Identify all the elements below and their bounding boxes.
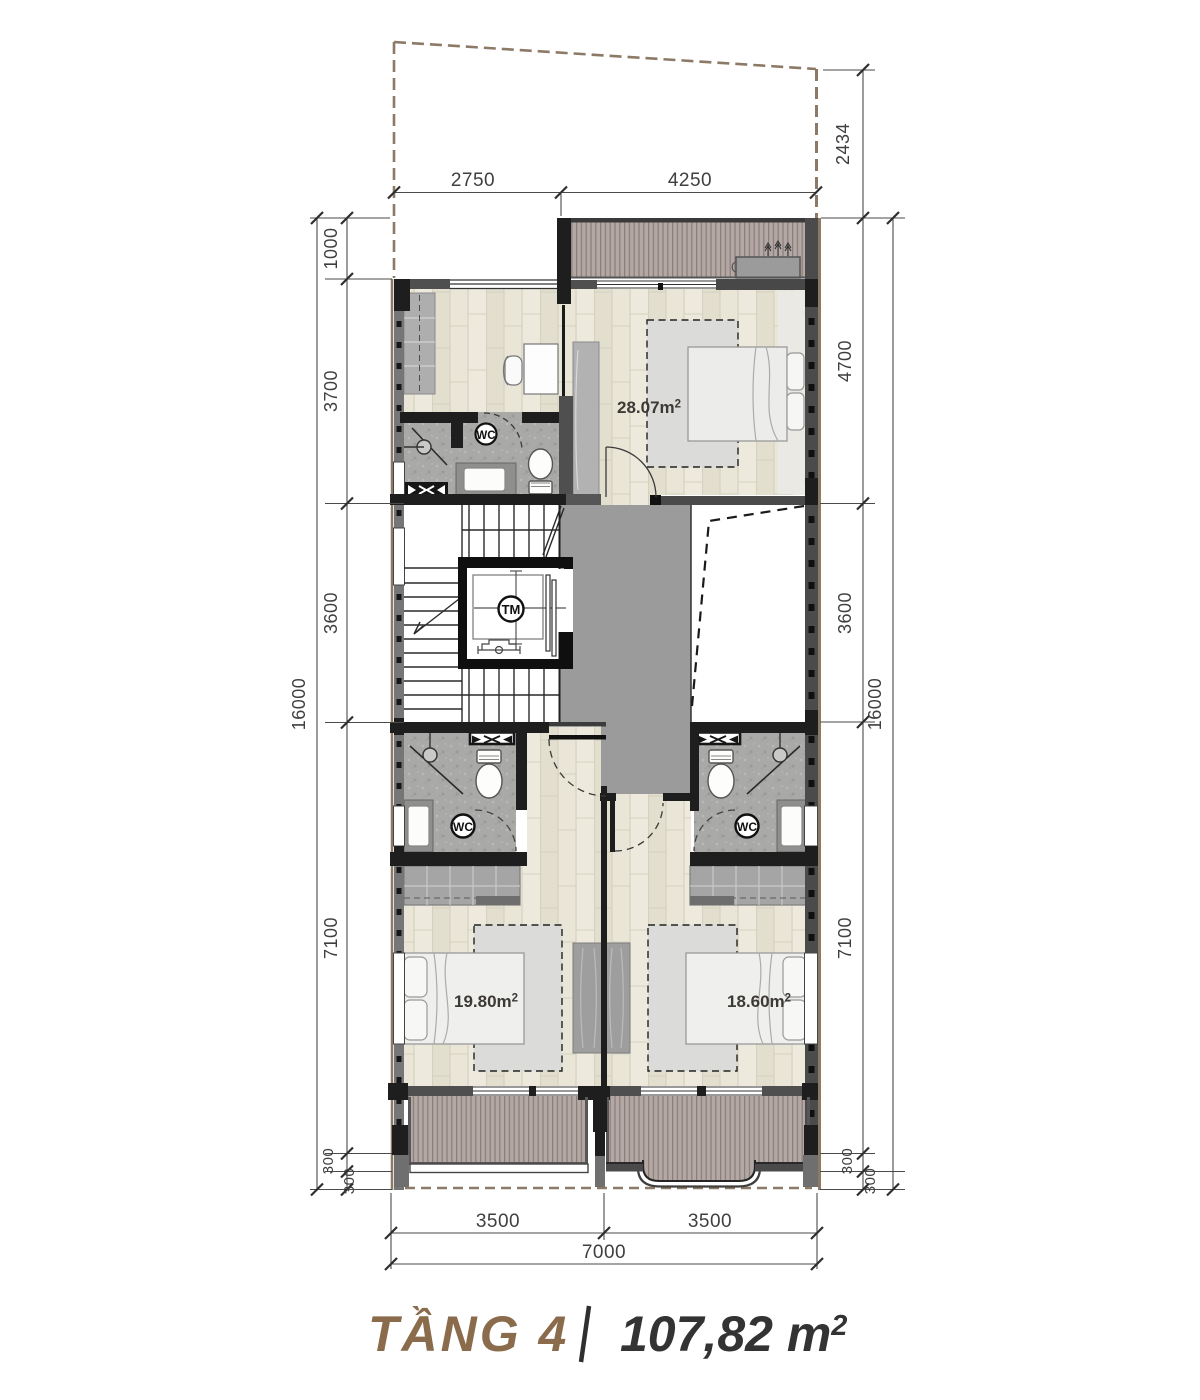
svg-text:28.07m2: 28.07m2 xyxy=(617,398,681,417)
svg-text:3500: 3500 xyxy=(476,1211,520,1232)
svg-text:3600: 3600 xyxy=(321,592,341,634)
svg-text:TẦNG 4: TẦNG 4 xyxy=(368,1306,569,1362)
svg-text:2434: 2434 xyxy=(833,123,853,165)
svg-text:WC: WC xyxy=(476,430,495,442)
svg-text:300: 300 xyxy=(862,1168,879,1195)
svg-text:1000: 1000 xyxy=(321,227,341,269)
svg-text:4700: 4700 xyxy=(835,340,855,382)
svg-text:18.60m2: 18.60m2 xyxy=(727,992,791,1011)
svg-text:300: 300 xyxy=(341,1168,358,1195)
svg-text:7100: 7100 xyxy=(835,917,855,959)
svg-text:300: 300 xyxy=(320,1148,337,1175)
svg-text:16000: 16000 xyxy=(865,678,885,731)
svg-text:4250: 4250 xyxy=(668,170,712,191)
svg-text:3600: 3600 xyxy=(835,592,855,634)
svg-text:3500: 3500 xyxy=(688,1211,732,1232)
svg-text:107,82 m2: 107,82 m2 xyxy=(620,1306,847,1362)
svg-text:7100: 7100 xyxy=(321,917,341,959)
svg-text:TM: TM xyxy=(502,602,521,617)
svg-text:300: 300 xyxy=(839,1148,856,1175)
svg-text:16000: 16000 xyxy=(289,678,309,731)
svg-text:WC: WC xyxy=(737,820,757,834)
svg-text:7000: 7000 xyxy=(582,1242,626,1263)
svg-text:3700: 3700 xyxy=(321,370,341,412)
svg-text:2750: 2750 xyxy=(451,170,495,191)
svg-text:19.80m2: 19.80m2 xyxy=(454,992,518,1011)
svg-text:WC: WC xyxy=(453,820,473,834)
